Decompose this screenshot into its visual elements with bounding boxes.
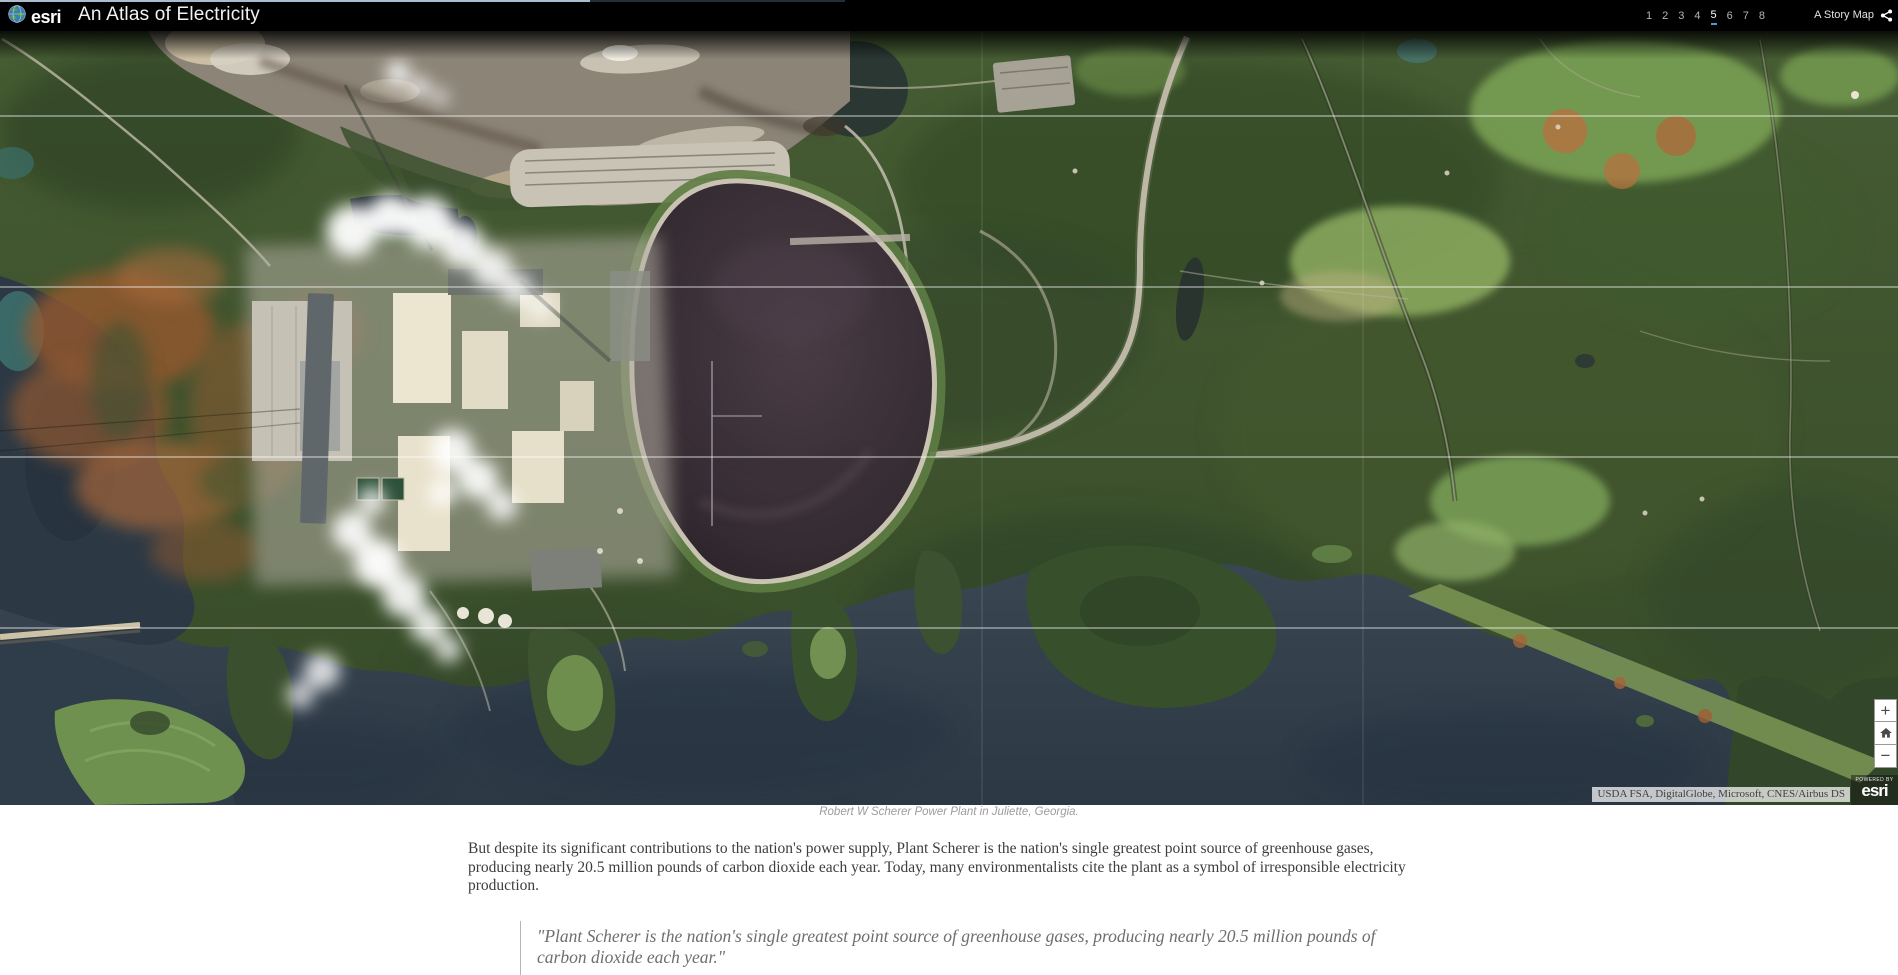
esri-globe-icon bbox=[8, 5, 26, 28]
page-number-7[interactable]: 7 bbox=[1743, 10, 1749, 24]
zoom-in-button[interactable]: + bbox=[1874, 699, 1897, 722]
page-number-3[interactable]: 3 bbox=[1678, 10, 1684, 24]
esri-brand-word: esri bbox=[31, 6, 61, 28]
map-attribution: USDA FSA, DigitalGlobe, Microsoft, CNES/… bbox=[1592, 787, 1850, 802]
story-map-label[interactable]: A Story Map bbox=[1814, 9, 1874, 21]
page-number-1[interactable]: 1 bbox=[1646, 10, 1652, 24]
page-number-8[interactable]: 8 bbox=[1759, 10, 1765, 24]
home-button[interactable] bbox=[1874, 722, 1897, 745]
page-number-2[interactable]: 2 bbox=[1662, 10, 1668, 24]
header-top-strip-dark bbox=[590, 0, 845, 2]
page-title: An Atlas of Electricity bbox=[78, 4, 260, 26]
map-zoom-controls: + − bbox=[1874, 699, 1897, 768]
map-top-shadow bbox=[0, 31, 1898, 59]
map-caption: Robert W Scherer Power Plant in Juliette… bbox=[0, 806, 1898, 818]
page-number-5-active[interactable]: 5 bbox=[1711, 9, 1717, 25]
app-header: esri An Atlas of Electricity 1 2 3 4 5 6… bbox=[0, 0, 1898, 31]
home-icon bbox=[1879, 726, 1893, 740]
article-paragraph: But despite its significant contribution… bbox=[468, 840, 1416, 896]
coal-ash-pond-layer bbox=[632, 181, 935, 582]
share-icon[interactable] bbox=[1880, 9, 1893, 27]
satellite-map[interactable]: USDA FSA, DigitalGlobe, Microsoft, CNES/… bbox=[0, 31, 1898, 805]
header-top-strip bbox=[0, 0, 590, 2]
page-number-4[interactable]: 4 bbox=[1694, 10, 1700, 24]
page-number-6[interactable]: 6 bbox=[1727, 10, 1733, 24]
zoom-out-button[interactable]: − bbox=[1874, 745, 1897, 768]
pull-quote: "Plant Scherer is the nation's single gr… bbox=[520, 921, 1405, 975]
powered-by-esri-logo[interactable]: POWERED BY esri bbox=[1851, 775, 1898, 805]
esri-logo[interactable]: esri bbox=[8, 5, 61, 28]
page-navigation: 1 2 3 4 5 6 7 8 bbox=[1641, 9, 1770, 25]
powered-by-brand: esri bbox=[1851, 782, 1898, 799]
